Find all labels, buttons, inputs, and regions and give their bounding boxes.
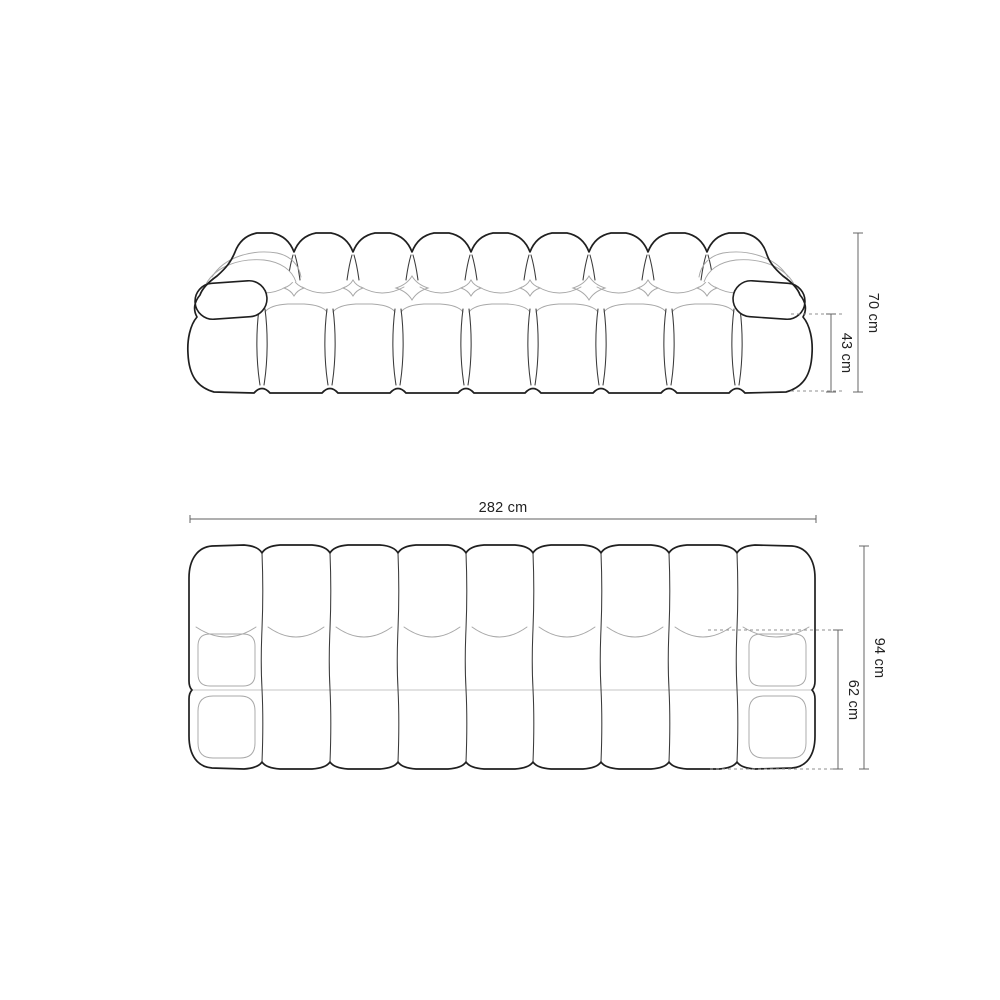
seat-cushion-top: [536, 304, 598, 312]
top-sofa-outline: [189, 545, 815, 769]
tuft-star: [573, 276, 605, 300]
seat-cushion-divider: [664, 309, 667, 385]
seat-cushion-divider: [739, 309, 742, 385]
top-sofa-drawing: [189, 545, 815, 769]
front-view: 70 cm 43 cm: [188, 233, 881, 393]
tuft-star: [697, 280, 717, 296]
seat-cushion-top: [401, 304, 463, 312]
back-cushion-edge: [472, 627, 527, 637]
top-view: 282 cm 94 cm 62 cm: [189, 500, 887, 769]
back-cushion-edge: [336, 627, 392, 637]
seat-cushion-top: [333, 304, 395, 312]
diagram-canvas: 70 cm 43 cm 282 cm 94 cm 62 cm: [0, 0, 1000, 1000]
sofa-dimension-diagram: 70 cm 43 cm 282 cm 94 cm 62 cm: [0, 0, 1000, 1000]
dimension-label-seat-height: 43 cm: [838, 333, 854, 374]
seat-cushion-top: [604, 304, 666, 312]
back-cushion-divider: [590, 255, 595, 280]
back-cushion-edge: [268, 627, 324, 637]
tuft-star: [284, 280, 304, 296]
back-cushion-edge: [607, 627, 663, 637]
back-cushion-divider: [347, 255, 352, 280]
tuft-star: [461, 280, 481, 296]
seat-cushion-divider: [257, 309, 260, 385]
seat-cushion-divider: [332, 309, 335, 385]
seat-cushion-divider: [400, 309, 403, 385]
seat-cushion-divider: [393, 309, 396, 385]
module-divider: [329, 553, 331, 762]
module-divider: [668, 553, 670, 762]
seat-cushion-divider: [671, 309, 674, 385]
seat-cushion-divider: [461, 309, 464, 385]
seat-cushion-top: [469, 304, 530, 312]
dimension-label-total-width: 282 cm: [479, 500, 528, 516]
back-cushion-divider: [465, 255, 470, 280]
seat-cushion-divider: [468, 309, 471, 385]
right-armrest-panel: [749, 634, 806, 686]
seat-cushion-top: [672, 304, 734, 312]
back-cushion-divider: [472, 255, 477, 280]
back-cushion-divider: [354, 255, 359, 280]
back-cushion-divider: [524, 255, 529, 280]
back-cushion-edge: [404, 627, 460, 637]
seat-cushion-divider: [603, 309, 606, 385]
module-divider: [736, 553, 738, 762]
left-armrest-panel: [198, 634, 255, 686]
back-cushion-crease: [302, 287, 345, 293]
seat-cushion-divider: [325, 309, 328, 385]
back-cushion-divider: [583, 255, 588, 280]
module-divider: [397, 553, 399, 762]
tuft-star: [520, 280, 540, 296]
right-armrest-panel: [749, 696, 806, 758]
back-cushion-divider: [642, 255, 647, 280]
top-view-dimensions: [190, 515, 869, 769]
module-divider: [465, 553, 467, 762]
seat-cushion-divider: [535, 309, 538, 385]
seat-cushion-divider: [732, 309, 735, 385]
dimension-label-total-depth: 94 cm: [871, 638, 887, 679]
tuft-star: [638, 280, 658, 296]
left-armrest-panel: [198, 696, 255, 758]
module-divider: [532, 553, 534, 762]
module-divider: [600, 553, 602, 762]
back-cushion-divider: [413, 255, 418, 280]
back-cushion-edge: [743, 627, 809, 637]
front-sofa-drawing: [188, 233, 812, 393]
back-cushion-crease: [656, 287, 699, 293]
seat-cushion-top: [265, 304, 327, 312]
tuft-star: [396, 276, 428, 300]
dimension-label-seat-depth: 62 cm: [845, 680, 861, 721]
back-cushion-divider: [406, 255, 411, 280]
module-divider: [261, 553, 263, 762]
seat-cushion-divider: [528, 309, 531, 385]
dimension-label-total-height: 70 cm: [865, 293, 881, 334]
back-cushion-divider: [531, 255, 536, 280]
back-cushion-edge: [675, 627, 731, 637]
back-cushion-divider: [649, 255, 654, 280]
back-cushion-crease: [479, 287, 522, 293]
seat-cushion-divider: [596, 309, 599, 385]
back-cushion-edge: [196, 627, 256, 637]
back-cushion-edge: [539, 627, 595, 637]
seat-cushion-divider: [264, 309, 267, 385]
tuft-star: [343, 280, 363, 296]
front-sofa-outline: [188, 233, 812, 393]
